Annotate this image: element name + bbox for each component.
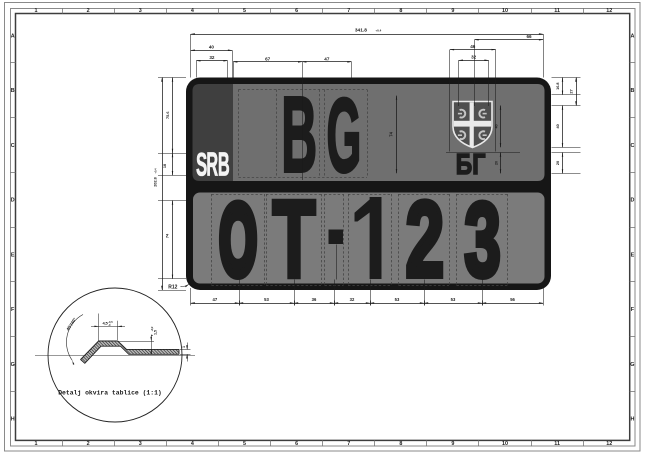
svg-text:7: 7: [347, 8, 350, 14]
svg-text:11: 11: [554, 441, 560, 447]
svg-text:36: 36: [312, 297, 317, 302]
svg-text:56: 56: [510, 297, 515, 302]
svg-text:6: 6: [295, 441, 298, 447]
svg-text:12: 12: [606, 441, 612, 447]
svg-text:53: 53: [264, 297, 269, 302]
svg-text:5: 5: [243, 8, 246, 14]
svg-text:1,5: 1,5: [153, 330, 157, 335]
svg-text:4: 4: [191, 441, 194, 447]
svg-text:11: 11: [554, 8, 560, 14]
svg-text:75.6: 75.6: [166, 112, 170, 119]
svg-text:Detalj okvira tablice (1:1): Detalj okvira tablice (1:1): [58, 390, 162, 397]
svg-text:47: 47: [324, 56, 330, 61]
svg-text:9: 9: [451, 8, 454, 14]
svg-text:12: 12: [606, 8, 612, 14]
svg-text:C: C: [630, 143, 634, 149]
svg-text:D: D: [11, 198, 15, 204]
svg-text:3: 3: [139, 8, 142, 14]
svg-text:G: G: [11, 362, 15, 368]
svg-text:T: T: [273, 179, 316, 300]
svg-text:46: 46: [470, 44, 476, 49]
svg-text:R: R: [206, 148, 218, 184]
svg-text:5: 5: [243, 441, 246, 447]
svg-text:S: S: [196, 148, 207, 183]
svg-text:53: 53: [451, 297, 456, 302]
svg-text:10: 10: [502, 8, 508, 14]
svg-text:A: A: [11, 33, 15, 39]
svg-text:8: 8: [399, 441, 402, 447]
svg-text:R12: R12: [168, 284, 177, 290]
svg-text:H: H: [11, 417, 15, 423]
svg-text:2: 2: [406, 181, 444, 300]
svg-text:G: G: [630, 362, 634, 368]
svg-text:6: 6: [295, 8, 298, 14]
svg-text:O: O: [219, 184, 257, 296]
svg-text:341.8: 341.8: [355, 27, 367, 33]
svg-text:1: 1: [35, 441, 38, 447]
svg-text:7: 7: [347, 441, 350, 447]
svg-text:20: 20: [556, 161, 560, 165]
svg-text:D: D: [630, 198, 634, 204]
svg-text:202.8: 202.8: [154, 177, 158, 187]
svg-text:A: A: [630, 33, 634, 39]
svg-text:67: 67: [265, 56, 271, 61]
svg-text:74: 74: [389, 131, 394, 136]
svg-text:B: B: [281, 74, 317, 195]
svg-text:G: G: [327, 78, 362, 195]
svg-text:2: 2: [87, 8, 90, 14]
svg-text:27: 27: [570, 89, 574, 93]
svg-text:32: 32: [350, 297, 355, 302]
svg-text:8: 8: [399, 8, 402, 14]
svg-text:H: H: [630, 417, 634, 423]
svg-text:B: B: [630, 88, 634, 94]
svg-text:9: 9: [451, 441, 454, 447]
svg-text:3: 3: [139, 441, 142, 447]
svg-text:47: 47: [213, 297, 218, 302]
svg-text:E: E: [11, 252, 15, 258]
svg-text:1: 1: [35, 8, 38, 14]
svg-text:40: 40: [494, 124, 498, 128]
svg-text:66: 66: [526, 34, 532, 39]
svg-text:1: 1: [182, 346, 186, 348]
svg-text:+0,2: +0,2: [151, 326, 154, 331]
svg-text:53: 53: [395, 297, 400, 302]
svg-text:+0.4: +0.4: [154, 168, 158, 174]
svg-text:18: 18: [163, 164, 167, 168]
svg-text:4: 4: [191, 8, 194, 14]
svg-text:+0.4: +0.4: [375, 28, 381, 32]
svg-text:10: 10: [502, 441, 508, 447]
svg-text:32: 32: [471, 55, 477, 60]
svg-text:E: E: [631, 252, 635, 258]
svg-text:40: 40: [209, 45, 215, 50]
svg-text:C: C: [11, 143, 15, 149]
svg-text:2: 2: [87, 441, 90, 447]
svg-text:16.8: 16.8: [556, 82, 560, 89]
svg-text:20: 20: [494, 161, 498, 165]
svg-text:40: 40: [556, 124, 560, 128]
svg-text:B: B: [218, 145, 230, 183]
svg-text:B: B: [11, 88, 15, 94]
svg-text:32: 32: [209, 55, 215, 60]
